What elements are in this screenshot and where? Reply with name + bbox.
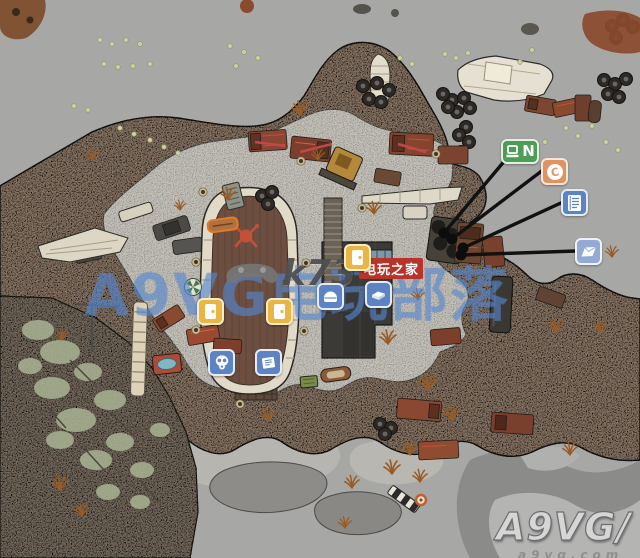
newspaper-icon — [260, 356, 277, 370]
coin-icon: C — [545, 162, 564, 181]
pinwheel — [185, 279, 202, 296]
marker-computer-label: N — [522, 144, 535, 159]
door-icon — [271, 302, 288, 321]
ladder-walkway — [130, 302, 147, 396]
marker-ledger — [561, 189, 588, 216]
game-map-screenshot: A9VG电玩部落 k73 电玩之家 .com N C — [0, 0, 640, 558]
gamepad-icon — [224, 256, 280, 286]
door-icon — [349, 248, 366, 267]
marker-coin: C — [541, 158, 568, 185]
marker-newspaper — [255, 349, 282, 376]
books-icon — [370, 287, 387, 302]
marker-door-3 — [266, 298, 293, 325]
marker-gas-mask — [208, 349, 235, 376]
gas-mask-icon — [214, 355, 230, 370]
marker-helmet — [317, 283, 344, 310]
marker-map-note — [575, 238, 602, 265]
notebook-icon — [566, 194, 583, 212]
door-icon — [202, 302, 219, 321]
laptop-icon — [505, 145, 520, 158]
pool-car — [152, 353, 182, 375]
helmet-icon — [322, 289, 339, 304]
marker-door-2 — [197, 298, 224, 325]
marker-door-1 — [344, 244, 371, 271]
marker-computer-note: N — [501, 139, 539, 164]
marker-books — [365, 281, 392, 308]
folded-map-icon — [580, 245, 598, 259]
